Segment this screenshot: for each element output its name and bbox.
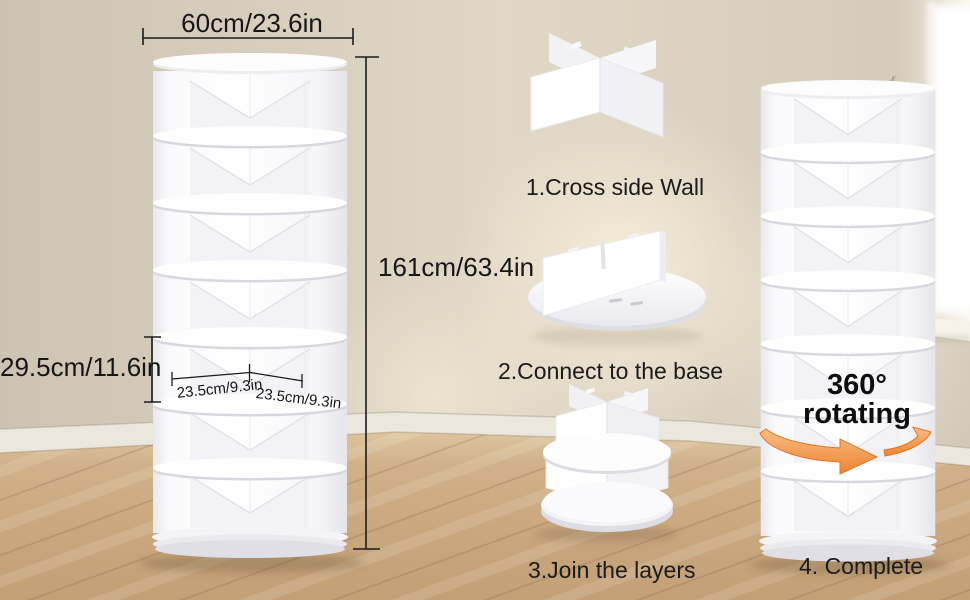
rotating-360-label: 360° rotating (782, 371, 932, 429)
scene-artwork (0, 0, 970, 600)
tier-height-dimension-label: 29.5cm/11.6in (0, 352, 146, 383)
rotating-360-line1: 360° (782, 371, 932, 400)
window-light (933, 5, 970, 313)
step3-label: 3.Join the layers (528, 557, 695, 584)
shoe-rack-product-diagram: 60cm/23.6in 161cm/63.4in 29.5cm/11.6in 2… (0, 0, 970, 600)
step1-label: 1.Cross side Wall (526, 174, 704, 201)
height-dimension-label: 161cm/63.4in (378, 252, 534, 283)
rotating-360-line2: rotating (782, 400, 932, 429)
dimension-tower (140, 53, 364, 573)
width-dimension-label: 60cm/23.6in (150, 8, 354, 39)
step2-label: 2.Connect to the base (498, 358, 723, 385)
step4-label: 4. Complete (799, 553, 923, 580)
complete-tower (750, 80, 950, 574)
